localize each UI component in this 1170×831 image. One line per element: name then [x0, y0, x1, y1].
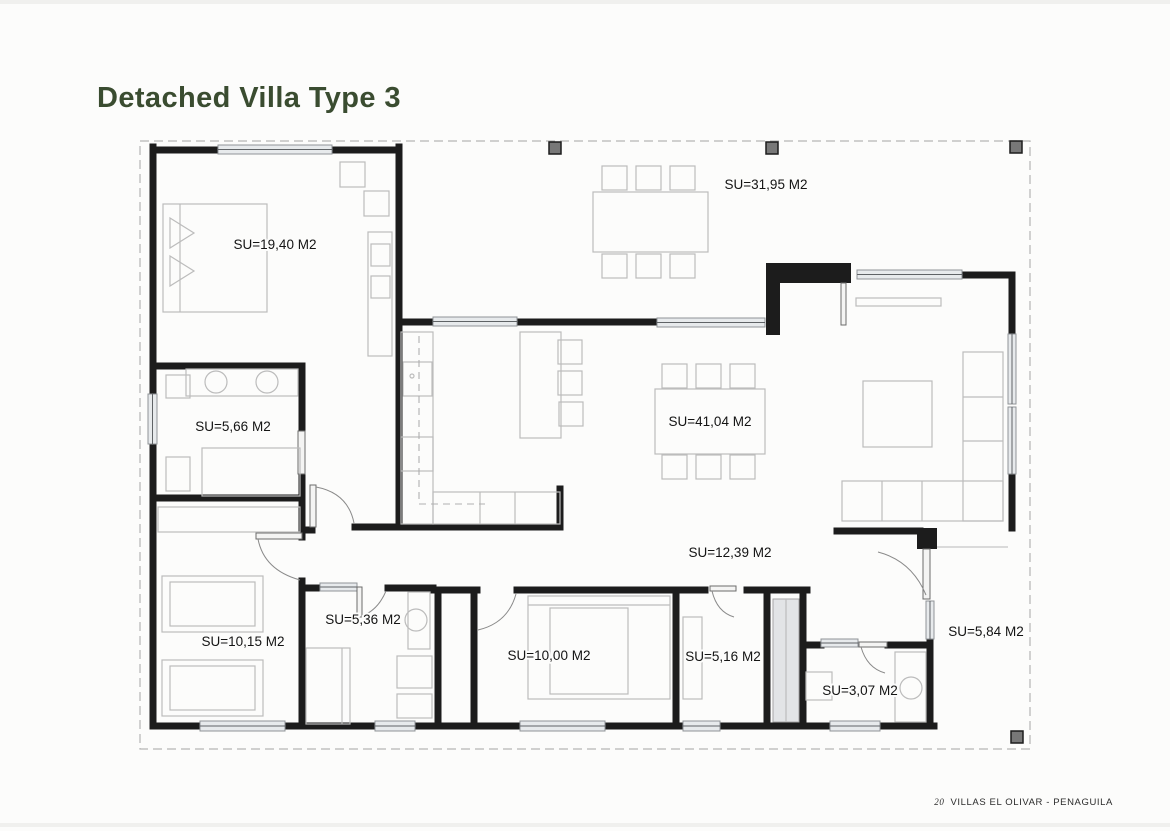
- bed-master: [163, 204, 267, 312]
- outdoor-chair: [602, 254, 627, 278]
- master-bedroom-furniture: [163, 162, 392, 356]
- sink-basin: [205, 371, 227, 393]
- wardrobe-unit: [364, 191, 389, 216]
- room-label-terrace: SU=31,95 M2: [725, 177, 808, 192]
- room-label-bathroom-2: SU=5,36 M2: [325, 612, 400, 627]
- bed-mattress: [170, 582, 255, 626]
- page-footer: 20VILLAS EL OLIVAR - PENAGUILA: [934, 797, 1113, 808]
- bed-single: [162, 576, 263, 632]
- outdoor-chair: [670, 254, 695, 278]
- coffee-table: [863, 381, 932, 447]
- outdoor-chair: [602, 166, 627, 190]
- bathtub: [202, 448, 300, 496]
- column: [766, 142, 778, 154]
- wardrobe-unit: [340, 162, 365, 187]
- door-leaf-bathroom-1: [298, 431, 305, 474]
- page: { "page": { "title": "Detached Villa Typ…: [0, 0, 1170, 827]
- bidet: [397, 694, 432, 718]
- terrace-furniture: [593, 166, 708, 278]
- pillow: [170, 256, 194, 286]
- room-label-entry-porch: SU=5,84 M2: [948, 624, 1023, 639]
- sideboard: [856, 298, 941, 306]
- bar-stool: [559, 402, 583, 426]
- page-number: 20: [934, 797, 944, 807]
- door-leaf-bathroom-3: [859, 642, 887, 647]
- door-leaf-bedroom-2: [256, 533, 302, 539]
- door-arc-bedroom-3: [478, 594, 516, 630]
- bed-mattress: [170, 666, 255, 710]
- dining-chair: [696, 455, 721, 479]
- outdoor-table: [593, 192, 708, 252]
- room-label-bathroom-3: SU=3,07 M2: [822, 683, 897, 698]
- terrace-sliding-door: [841, 283, 846, 325]
- room-label-living-dining: SU=41,04 M2: [669, 414, 752, 429]
- room-label-dressing-room: SU=5,16 M2: [685, 649, 760, 664]
- vanity-counter: [186, 369, 298, 396]
- column: [1010, 141, 1022, 153]
- pillow: [170, 218, 194, 248]
- bed-single: [162, 660, 263, 716]
- door-arc-bathroom-3: [861, 647, 885, 673]
- counter-west: [401, 332, 433, 524]
- dining-chair: [696, 364, 721, 388]
- dining-chair: [730, 455, 755, 479]
- column: [549, 142, 561, 154]
- cooktop: [401, 437, 433, 471]
- breakfast-bar: [520, 332, 561, 438]
- front-door-arc: [878, 552, 926, 595]
- terrace-entry-recess-wall: [766, 263, 851, 335]
- sink-basin: [256, 371, 278, 393]
- dining-chair: [662, 455, 687, 479]
- project-name: VILLAS EL OLIVAR - PENAGUILA: [950, 797, 1113, 808]
- room-label-bedroom-2: SU=10,15 M2: [202, 634, 285, 649]
- sofa-east-section: [963, 352, 1003, 521]
- room-label-bedroom-3: SU=10,00 M2: [508, 648, 591, 663]
- sink-basin: [900, 677, 922, 699]
- kitchen-furniture: [401, 332, 583, 524]
- wardrobe-shelf: [371, 244, 390, 266]
- room-labels: SU=19,40 M2 SU=31,95 M2 SU=5,66 M2 SU=41…: [195, 177, 1023, 698]
- entry-step-wall: [917, 528, 937, 549]
- wardrobe: [158, 507, 300, 532]
- door-leaf-dressing: [710, 586, 736, 591]
- shower: [306, 648, 350, 724]
- dining-chair: [662, 364, 687, 388]
- room-label-bathroom-1: SU=5,66 M2: [195, 419, 270, 434]
- door-arc-bedroom-2: [258, 539, 300, 580]
- wardrobe-shelf: [371, 276, 390, 298]
- outdoor-chair: [670, 166, 695, 190]
- room-label-master-bedroom: SU=19,40 M2: [234, 237, 317, 252]
- outdoor-chair: [636, 254, 661, 278]
- room-label-hallway: SU=12,39 M2: [689, 545, 772, 560]
- column: [1011, 731, 1023, 743]
- living-furniture: [842, 298, 1003, 521]
- door-arc-dressing: [712, 591, 734, 617]
- dining-chair: [730, 364, 755, 388]
- sink-drain: [410, 374, 414, 378]
- kitchen-sink: [403, 362, 432, 396]
- toilet: [397, 656, 432, 688]
- upper-cabinets-dashed: [419, 336, 485, 504]
- counter-south: [433, 492, 560, 524]
- door-leaf-vestibule: [310, 485, 316, 527]
- outdoor-chair: [636, 166, 661, 190]
- wardrobe-tall: [368, 232, 392, 356]
- bidet: [166, 457, 190, 491]
- door-arc-vestibule: [316, 487, 354, 523]
- floor-plan-drawing: SU=19,40 M2 SU=31,95 M2 SU=5,66 M2 SU=41…: [0, 4, 1170, 831]
